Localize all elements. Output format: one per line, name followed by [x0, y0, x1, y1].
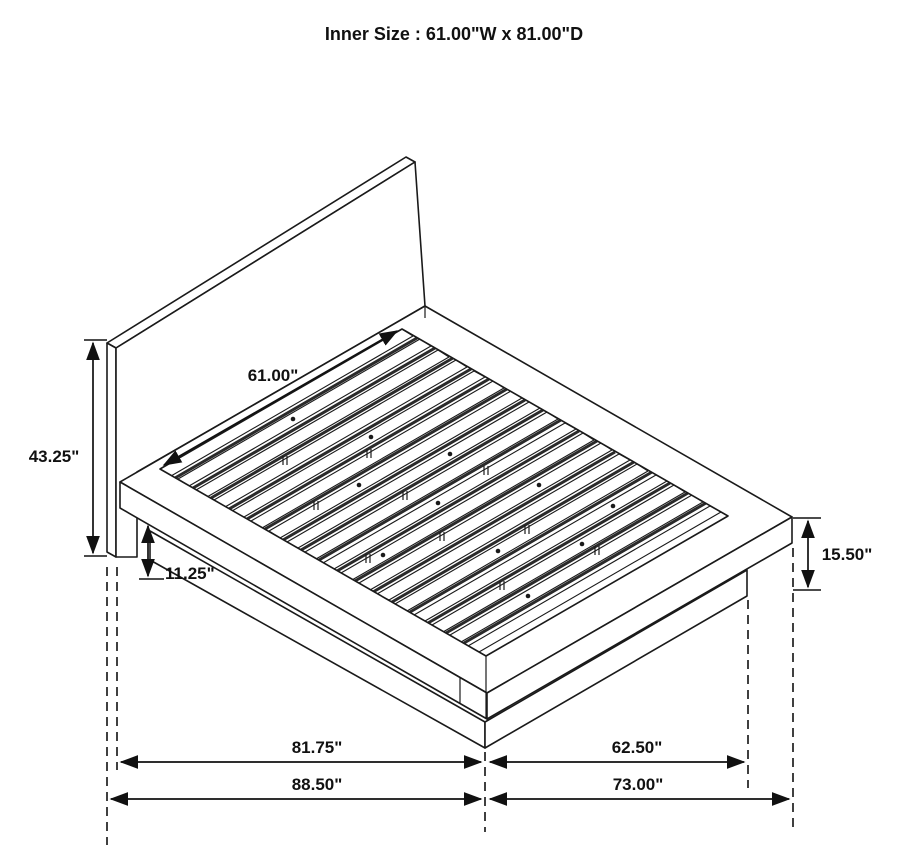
dim-depth-81: 81.75"	[121, 738, 481, 762]
headboard-left-edge	[107, 343, 116, 557]
dim-base-height-label: 11.25"	[165, 564, 215, 583]
dim-width-62-label: 62.50"	[612, 738, 663, 757]
dim-depth-88-label: 88.50"	[292, 775, 343, 794]
dim-headboard-height-label: 43.25"	[29, 447, 80, 466]
bed-diagram: Inner Size : 61.00"W x 81.00"D	[0, 0, 900, 850]
dim-width-73-label: 73.00"	[613, 775, 664, 794]
diagram-title: Inner Size : 61.00"W x 81.00"D	[325, 24, 583, 44]
dim-width-73: 73.00"	[490, 775, 789, 799]
dim-side-height-label: 15.50"	[822, 545, 873, 564]
dim-depth-88: 88.50"	[111, 775, 481, 799]
dim-width-62: 62.50"	[490, 738, 744, 762]
dim-depth-81-label: 81.75"	[292, 738, 343, 757]
dim-headboard-height: 43.25"	[29, 340, 107, 556]
dim-inner-width-label: 61.00"	[248, 366, 299, 385]
dim-side-height: 15.50"	[793, 518, 872, 590]
diagram-canvas: Inner Size : 61.00"W x 81.00"D	[0, 0, 900, 850]
